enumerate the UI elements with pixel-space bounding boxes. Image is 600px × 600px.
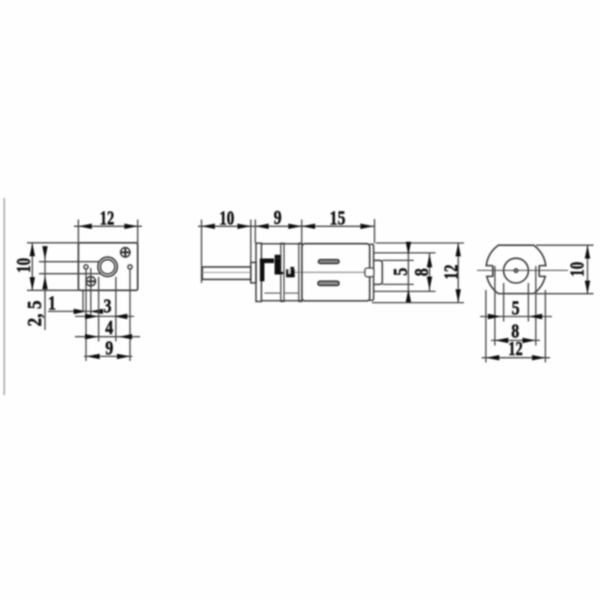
svg-text:8: 8 (411, 268, 433, 276)
svg-text:12: 12 (508, 338, 523, 360)
svg-text:9: 9 (274, 207, 282, 229)
svg-text:12: 12 (440, 265, 462, 280)
svg-text:12: 12 (100, 208, 115, 230)
svg-text:10: 10 (566, 262, 588, 277)
svg-text:15: 15 (330, 208, 346, 230)
svg-text:4: 4 (105, 317, 113, 339)
svg-text:2, 5: 2, 5 (24, 301, 46, 327)
svg-text:5: 5 (390, 268, 412, 276)
svg-text:10: 10 (219, 208, 234, 230)
svg-text:10: 10 (13, 258, 35, 273)
svg-text:3: 3 (104, 296, 112, 318)
